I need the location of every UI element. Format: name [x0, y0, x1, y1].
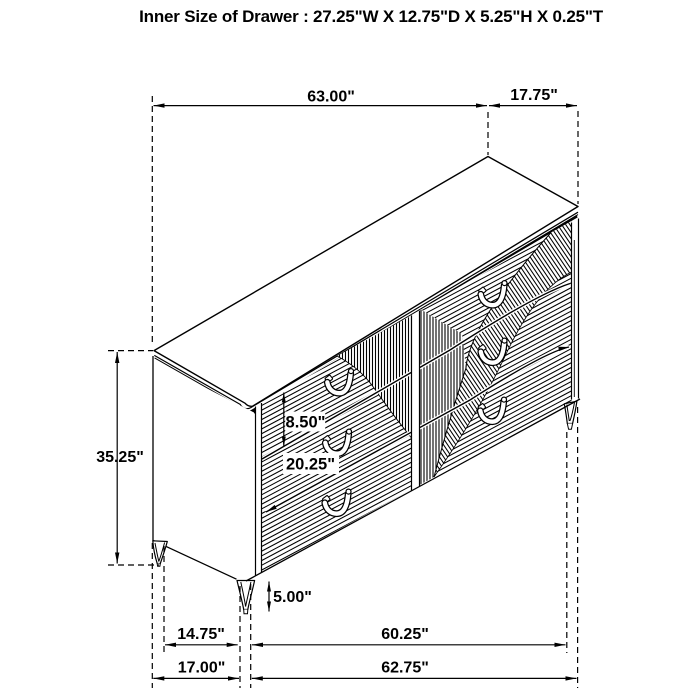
svg-text:Inner Size of Drawer : 27.25"W: Inner Size of Drawer : 27.25"W X 12.75"D… — [139, 7, 604, 26]
svg-text:8.50": 8.50" — [286, 414, 326, 432]
svg-text:14.75": 14.75" — [177, 626, 225, 643]
svg-text:20.25": 20.25" — [286, 456, 335, 474]
svg-text:62.75": 62.75" — [381, 660, 429, 677]
svg-text:17.75": 17.75" — [510, 87, 558, 104]
svg-text:60.25": 60.25" — [381, 626, 429, 643]
svg-text:17.00": 17.00" — [178, 660, 226, 677]
svg-text:63.00": 63.00" — [307, 89, 355, 106]
svg-text:35.25": 35.25" — [96, 449, 144, 466]
svg-text:5.00": 5.00" — [273, 589, 312, 606]
